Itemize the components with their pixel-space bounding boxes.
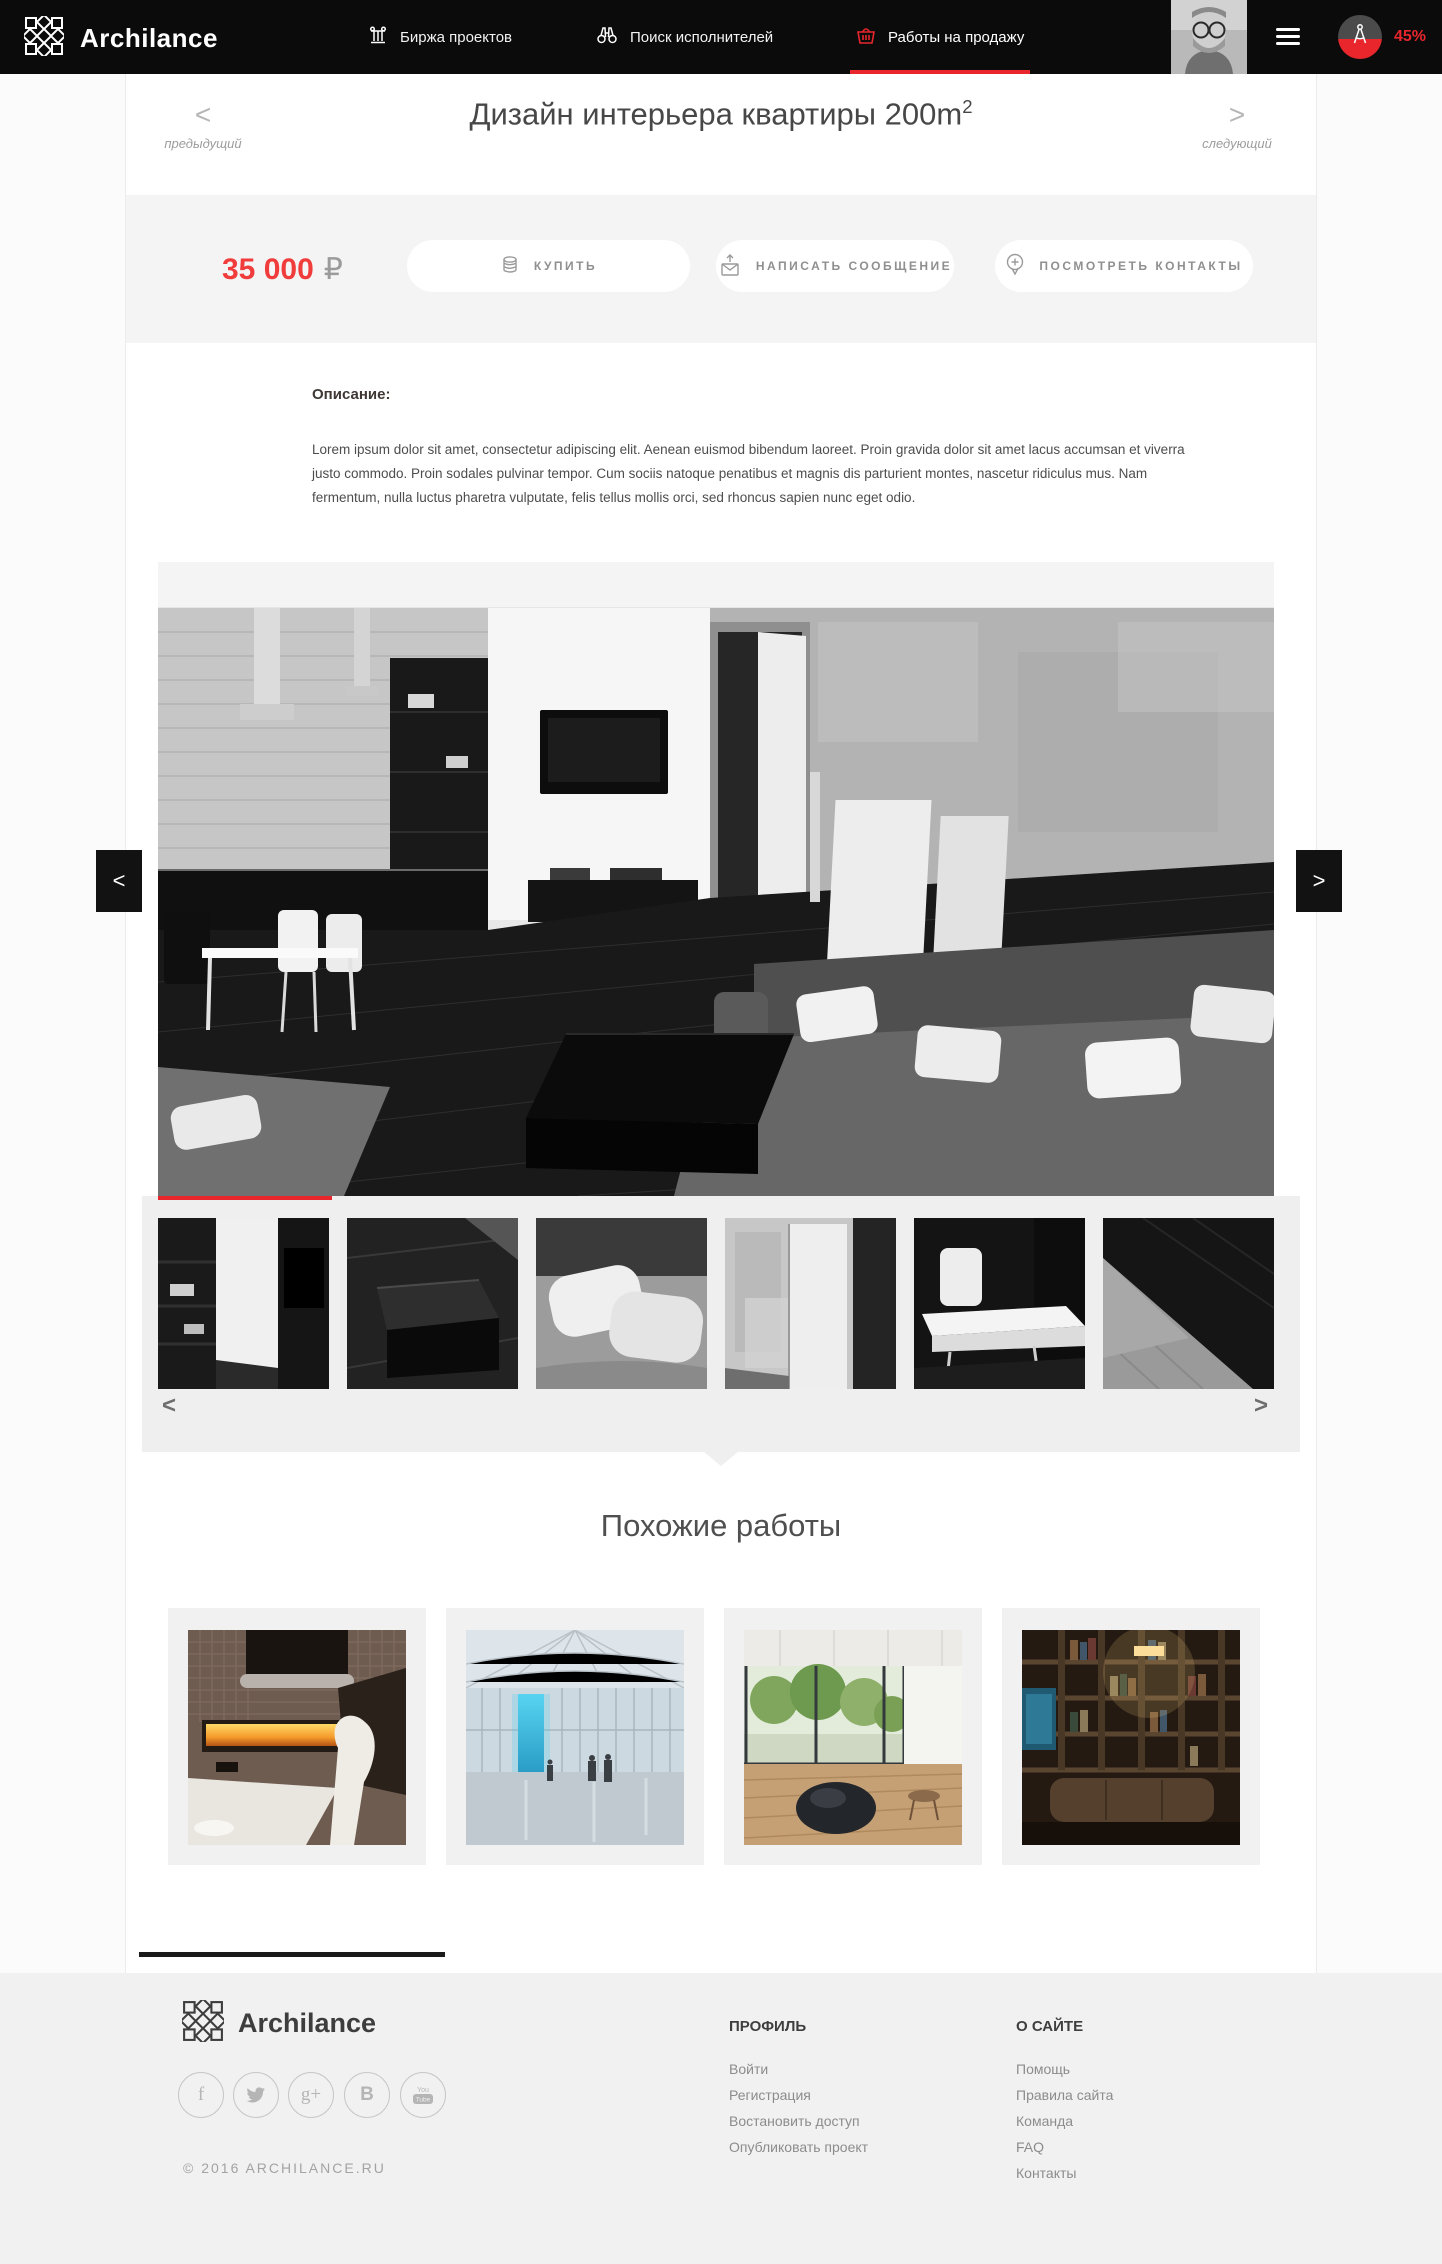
buy-button-label: КУПИТЬ bbox=[534, 259, 597, 273]
column-icon bbox=[368, 25, 388, 49]
footer-link-rules[interactable]: Правила сайта bbox=[1016, 2082, 1113, 2108]
title-superscript: 2 bbox=[962, 96, 972, 117]
footer-link-help[interactable]: Помощь bbox=[1016, 2056, 1113, 2082]
prev-work-button[interactable]: < предыдущий bbox=[158, 102, 248, 151]
description-heading: Описание: bbox=[312, 386, 390, 403]
google-plus-icon[interactable]: g+ bbox=[288, 2072, 334, 2118]
gallery-progress-indicator bbox=[158, 1196, 332, 1200]
footer-link-contacts[interactable]: Контакты bbox=[1016, 2160, 1113, 2186]
buy-button[interactable]: КУПИТЬ bbox=[407, 240, 690, 292]
next-work-button[interactable]: > следующий bbox=[1192, 102, 1282, 151]
similar-work-photo bbox=[188, 1630, 406, 1845]
logo[interactable]: Archilance bbox=[24, 16, 218, 61]
similar-work-photo bbox=[466, 1630, 684, 1845]
footer-link-faq[interactable]: FAQ bbox=[1016, 2134, 1113, 2160]
thumbnail-pillows[interactable] bbox=[536, 1218, 707, 1389]
footer-column-about-title: О САЙТЕ bbox=[1016, 2018, 1083, 2035]
similar-work-home-library[interactable] bbox=[1002, 1608, 1260, 1865]
footer-link-publish-project[interactable]: Опубликовать проект bbox=[729, 2134, 868, 2160]
logo-icon bbox=[182, 2000, 224, 2047]
similar-work-photo bbox=[744, 1630, 962, 1845]
currency-symbol: ₽ bbox=[324, 253, 343, 286]
chevron-right-icon: > bbox=[1192, 102, 1282, 128]
similar-work-photo bbox=[1022, 1630, 1240, 1845]
facebook-icon[interactable]: f bbox=[178, 2072, 224, 2118]
header: Archilance Биржа проектов Поиск исполнит… bbox=[0, 0, 1442, 74]
user-avatar[interactable] bbox=[1171, 0, 1247, 74]
chevron-left-icon: < bbox=[158, 102, 248, 128]
similar-work-mall-atrium[interactable] bbox=[446, 1608, 704, 1865]
description-text: Lorem ipsum dolor sit amet, consectetur … bbox=[312, 438, 1192, 510]
write-message-label: НАПИСАТЬ СООБЩЕНИЕ bbox=[756, 259, 952, 273]
location-pin-icon bbox=[1005, 253, 1025, 280]
chevron-right-icon: > bbox=[1254, 1392, 1268, 1419]
chevron-right-icon: > bbox=[1313, 868, 1326, 894]
thumbnails-next-button[interactable]: > bbox=[1254, 1392, 1268, 1420]
footer-link-team[interactable]: Команда bbox=[1016, 2108, 1113, 2134]
footer-brand-name: Archilance bbox=[238, 2008, 376, 2039]
price-value: 35 000 bbox=[222, 253, 314, 286]
footer-about-links: Помощь Правила сайта Команда FAQ Контакт… bbox=[1016, 2056, 1113, 2186]
profile-progress-value: 45% bbox=[1394, 28, 1426, 46]
nav-item-works-for-sale[interactable]: Работы на продажу bbox=[856, 0, 1024, 74]
thumbnail-dining-set[interactable] bbox=[914, 1218, 1085, 1389]
vk-icon[interactable]: В bbox=[344, 2072, 390, 2118]
nav-item-projects[interactable]: Биржа проектов bbox=[368, 0, 512, 74]
copyright: © 2016 ARCHILANCE.RU bbox=[183, 2160, 386, 2176]
price: 35 000₽ bbox=[222, 252, 343, 287]
nav-item-search-performers[interactable]: Поиск исполнителей bbox=[596, 0, 773, 74]
thumbnails-prev-button[interactable]: < bbox=[162, 1392, 176, 1420]
binoculars-icon bbox=[596, 25, 618, 49]
thumbnail-sofa-corner[interactable] bbox=[1103, 1218, 1274, 1389]
basket-icon bbox=[856, 26, 876, 49]
nav-item-label: Работы на продажу bbox=[888, 29, 1024, 46]
footer-logo[interactable]: Archilance bbox=[182, 2000, 376, 2047]
write-message-button[interactable]: НАПИСАТЬ СООБЩЕНИЕ bbox=[716, 240, 954, 292]
next-work-label: следующий bbox=[1192, 136, 1282, 151]
thumbnail-doorway[interactable] bbox=[725, 1218, 896, 1389]
svg-text:You: You bbox=[417, 2087, 429, 2094]
svg-text:Tube: Tube bbox=[416, 2097, 431, 2104]
photo-next-button[interactable]: > bbox=[1296, 850, 1342, 912]
prev-work-label: предыдущий bbox=[158, 136, 248, 151]
thumbnail-kitchen-shelves[interactable] bbox=[158, 1218, 329, 1389]
page-title: Дизайн интерьера квартиры 200m2 bbox=[125, 96, 1317, 132]
view-contacts-button[interactable]: ПОСМОТРЕТЬ КОНТАКТЫ bbox=[995, 240, 1253, 292]
logo-icon bbox=[24, 16, 64, 61]
compass-icon bbox=[1351, 23, 1369, 52]
chevron-left-icon: < bbox=[113, 868, 126, 894]
view-contacts-label: ПОСМОТРЕТЬ КОНТАКТЫ bbox=[1039, 259, 1242, 273]
footer-column-profile-title: ПРОФИЛЬ bbox=[729, 2018, 806, 2035]
send-message-icon bbox=[718, 254, 742, 279]
profile-progress-indicator[interactable] bbox=[1338, 15, 1382, 59]
nav-item-label: Биржа проектов bbox=[400, 29, 512, 46]
nav-item-label: Поиск исполнителей bbox=[630, 29, 773, 46]
gallery-notch bbox=[704, 1452, 738, 1466]
footer-link-restore-access[interactable]: Востановить доступ bbox=[729, 2108, 868, 2134]
footer-link-register[interactable]: Регистрация bbox=[729, 2082, 868, 2108]
similar-work-fireplace[interactable] bbox=[168, 1608, 426, 1865]
footer-profile-links: Войти Регистрация Востановить доступ Опу… bbox=[729, 2056, 868, 2160]
page: Archilance Биржа проектов Поиск исполнит… bbox=[0, 0, 1442, 2264]
coins-icon bbox=[500, 255, 520, 278]
youtube-icon[interactable]: You Tube bbox=[400, 2072, 446, 2118]
menu-icon[interactable] bbox=[1276, 28, 1300, 49]
twitter-icon[interactable] bbox=[233, 2072, 279, 2118]
footer-accent-bar bbox=[139, 1952, 445, 1957]
footer-link-login[interactable]: Войти bbox=[729, 2056, 868, 2082]
similar-work-living-room[interactable] bbox=[724, 1608, 982, 1865]
similar-works-heading: Похожие работы bbox=[125, 1508, 1317, 1544]
photo-prev-button[interactable]: < bbox=[96, 850, 142, 912]
brand-name: Archilance bbox=[80, 23, 218, 54]
main-photo[interactable] bbox=[158, 562, 1274, 1196]
chevron-left-icon: < bbox=[162, 1392, 176, 1419]
thumbnail-coffee-table[interactable] bbox=[347, 1218, 518, 1389]
